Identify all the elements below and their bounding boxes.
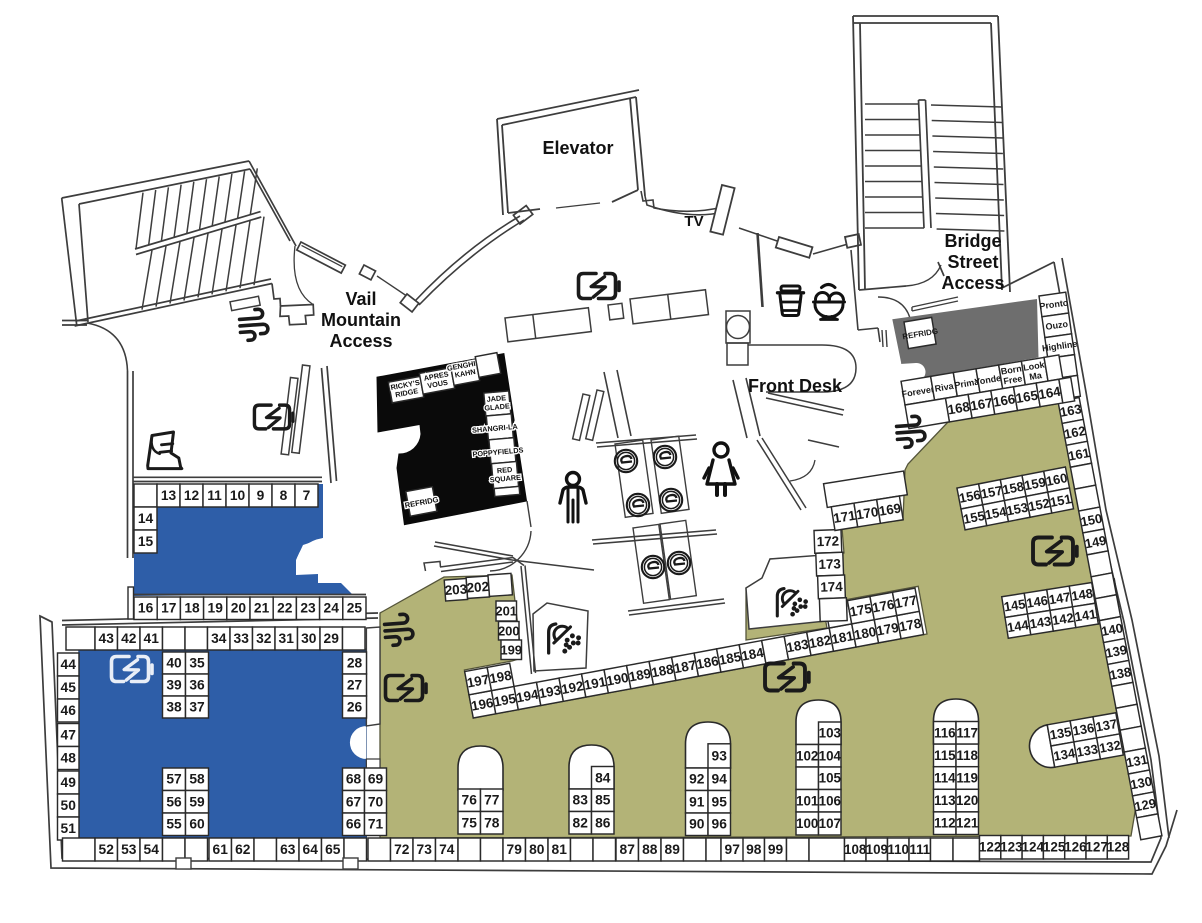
svg-text:199: 199 <box>500 642 522 657</box>
svg-text:84: 84 <box>595 770 611 785</box>
svg-text:11: 11 <box>207 488 222 503</box>
svg-text:28: 28 <box>347 656 363 671</box>
svg-text:14: 14 <box>138 511 154 526</box>
svg-text:103: 103 <box>819 726 841 741</box>
svg-text:16: 16 <box>138 601 154 616</box>
svg-text:115: 115 <box>934 748 956 763</box>
svg-text:100: 100 <box>796 816 818 831</box>
svg-text:15: 15 <box>138 534 154 549</box>
svg-text:7: 7 <box>303 488 311 503</box>
svg-text:37: 37 <box>189 700 205 715</box>
svg-text:200: 200 <box>498 623 520 638</box>
svg-text:35: 35 <box>189 656 205 671</box>
svg-text:87: 87 <box>620 842 636 857</box>
svg-text:66: 66 <box>346 817 362 832</box>
svg-text:Elevator: Elevator <box>542 138 613 158</box>
svg-text:106: 106 <box>819 793 841 808</box>
svg-text:74: 74 <box>439 842 455 857</box>
svg-text:114: 114 <box>934 771 956 786</box>
svg-text:125: 125 <box>1043 840 1066 855</box>
svg-text:174: 174 <box>820 579 843 595</box>
svg-text:69: 69 <box>368 772 384 787</box>
svg-text:89: 89 <box>665 842 681 857</box>
svg-text:98: 98 <box>746 842 762 857</box>
svg-text:25: 25 <box>347 601 363 616</box>
svg-text:201: 201 <box>495 604 517 619</box>
svg-text:104: 104 <box>819 748 842 763</box>
svg-text:50: 50 <box>61 798 77 813</box>
svg-text:49: 49 <box>61 775 77 790</box>
svg-text:107: 107 <box>819 816 841 831</box>
svg-text:17: 17 <box>161 601 177 616</box>
svg-text:36: 36 <box>189 678 205 693</box>
svg-text:92: 92 <box>689 772 705 787</box>
svg-text:86: 86 <box>595 815 611 830</box>
svg-text:78: 78 <box>484 815 500 830</box>
svg-text:99: 99 <box>768 842 784 857</box>
svg-text:53: 53 <box>121 842 137 857</box>
svg-text:128: 128 <box>1107 840 1130 855</box>
svg-text:173: 173 <box>818 556 841 572</box>
svg-text:117: 117 <box>956 725 978 740</box>
svg-text:72: 72 <box>394 842 410 857</box>
svg-text:126: 126 <box>1064 840 1087 855</box>
svg-text:22: 22 <box>277 601 293 616</box>
svg-text:8: 8 <box>280 488 288 503</box>
svg-text:73: 73 <box>417 842 433 857</box>
svg-text:108: 108 <box>844 842 867 857</box>
svg-text:30: 30 <box>301 631 317 646</box>
svg-text:113: 113 <box>934 793 956 808</box>
svg-text:91: 91 <box>689 794 705 809</box>
svg-text:85: 85 <box>595 793 611 808</box>
svg-text:68: 68 <box>346 772 362 787</box>
svg-text:27: 27 <box>347 678 363 693</box>
svg-text:56: 56 <box>166 794 182 809</box>
svg-text:67: 67 <box>346 794 362 809</box>
svg-text:Mountain: Mountain <box>321 310 401 330</box>
svg-text:46: 46 <box>61 703 77 718</box>
svg-text:45: 45 <box>61 680 77 695</box>
svg-text:42: 42 <box>121 631 137 646</box>
svg-text:70: 70 <box>368 794 384 809</box>
svg-text:9: 9 <box>257 488 265 503</box>
svg-text:58: 58 <box>189 772 205 787</box>
svg-text:13: 13 <box>161 488 177 503</box>
svg-text:119: 119 <box>956 771 978 786</box>
svg-text:120: 120 <box>956 793 978 808</box>
svg-text:43: 43 <box>99 631 115 646</box>
svg-text:111: 111 <box>909 842 930 857</box>
svg-text:19: 19 <box>208 601 224 616</box>
svg-text:90: 90 <box>689 817 705 832</box>
svg-text:123: 123 <box>1000 840 1023 855</box>
svg-text:33: 33 <box>234 631 250 646</box>
svg-text:34: 34 <box>211 631 227 646</box>
svg-text:57: 57 <box>166 772 182 787</box>
svg-text:121: 121 <box>956 816 979 831</box>
svg-text:60: 60 <box>189 817 205 832</box>
svg-text:23: 23 <box>300 601 316 616</box>
svg-text:31: 31 <box>279 631 295 646</box>
svg-text:75: 75 <box>462 815 478 830</box>
svg-text:54: 54 <box>144 842 160 857</box>
svg-text:Vail: Vail <box>345 289 376 309</box>
svg-text:55: 55 <box>166 817 182 832</box>
svg-text:41: 41 <box>144 631 160 646</box>
svg-text:59: 59 <box>189 794 205 809</box>
svg-text:97: 97 <box>725 842 741 857</box>
svg-text:63: 63 <box>280 842 296 857</box>
svg-text:94: 94 <box>712 772 728 787</box>
svg-text:71: 71 <box>368 817 384 832</box>
svg-text:127: 127 <box>1085 840 1108 855</box>
svg-text:39: 39 <box>166 678 182 693</box>
svg-text:93: 93 <box>712 748 728 763</box>
svg-text:18: 18 <box>184 601 200 616</box>
svg-text:Access: Access <box>329 331 392 351</box>
svg-text:116: 116 <box>934 725 956 740</box>
svg-text:Bridge: Bridge <box>944 231 1001 251</box>
svg-text:110: 110 <box>887 842 909 857</box>
svg-text:32: 32 <box>256 631 272 646</box>
svg-text:122: 122 <box>979 840 1002 855</box>
svg-text:83: 83 <box>573 793 589 808</box>
svg-text:61: 61 <box>213 842 229 857</box>
svg-text:96: 96 <box>712 817 728 832</box>
svg-text:112: 112 <box>934 816 956 831</box>
svg-text:76: 76 <box>462 793 478 808</box>
svg-text:Street: Street <box>947 252 998 272</box>
svg-text:44: 44 <box>61 657 77 672</box>
svg-text:79: 79 <box>507 842 523 857</box>
svg-text:TV: TV <box>684 213 703 230</box>
svg-text:20: 20 <box>231 601 247 616</box>
svg-text:95: 95 <box>712 794 728 809</box>
svg-text:82: 82 <box>573 815 589 830</box>
svg-text:65: 65 <box>325 842 341 857</box>
svg-text:48: 48 <box>61 751 77 766</box>
svg-text:38: 38 <box>166 700 182 715</box>
svg-text:202: 202 <box>466 579 489 596</box>
svg-text:172: 172 <box>816 534 839 550</box>
svg-text:102: 102 <box>796 748 818 763</box>
svg-text:105: 105 <box>819 771 842 786</box>
svg-text:26: 26 <box>347 700 363 715</box>
svg-text:101: 101 <box>796 793 819 808</box>
svg-text:203: 203 <box>444 581 467 598</box>
svg-text:21: 21 <box>254 601 270 616</box>
svg-text:88: 88 <box>642 842 658 857</box>
svg-text:10: 10 <box>230 488 246 503</box>
svg-text:62: 62 <box>235 842 251 857</box>
svg-text:109: 109 <box>866 842 888 857</box>
svg-text:29: 29 <box>324 631 340 646</box>
svg-text:40: 40 <box>166 656 182 671</box>
svg-text:81: 81 <box>552 842 568 857</box>
svg-text:64: 64 <box>303 842 319 857</box>
svg-text:80: 80 <box>529 842 545 857</box>
svg-text:Access: Access <box>941 273 1004 293</box>
svg-text:47: 47 <box>61 728 77 743</box>
svg-text:118: 118 <box>956 748 978 763</box>
svg-text:124: 124 <box>1022 840 1045 855</box>
svg-text:51: 51 <box>61 821 77 836</box>
svg-text:12: 12 <box>184 488 200 503</box>
svg-text:Front Desk: Front Desk <box>748 376 843 396</box>
svg-text:24: 24 <box>324 601 340 616</box>
svg-text:77: 77 <box>484 793 500 808</box>
svg-text:52: 52 <box>99 842 115 857</box>
